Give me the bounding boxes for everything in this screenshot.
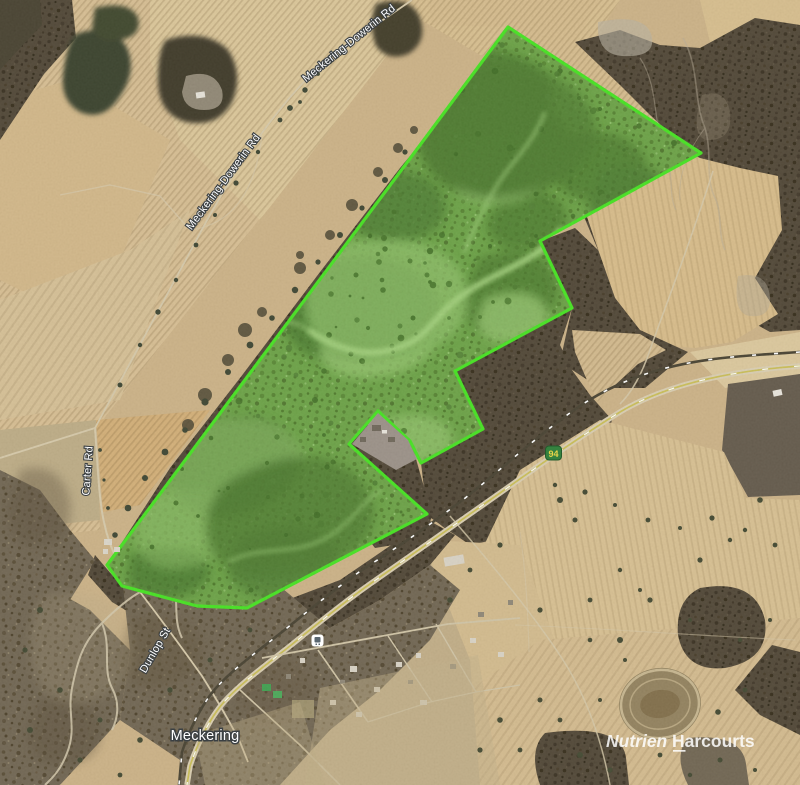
svg-text:Meckering: Meckering	[171, 728, 240, 744]
svg-text:Nutrien: Nutrien	[606, 731, 667, 751]
svg-text:Harcourts: Harcourts	[672, 731, 755, 751]
svg-text:94: 94	[548, 449, 558, 459]
